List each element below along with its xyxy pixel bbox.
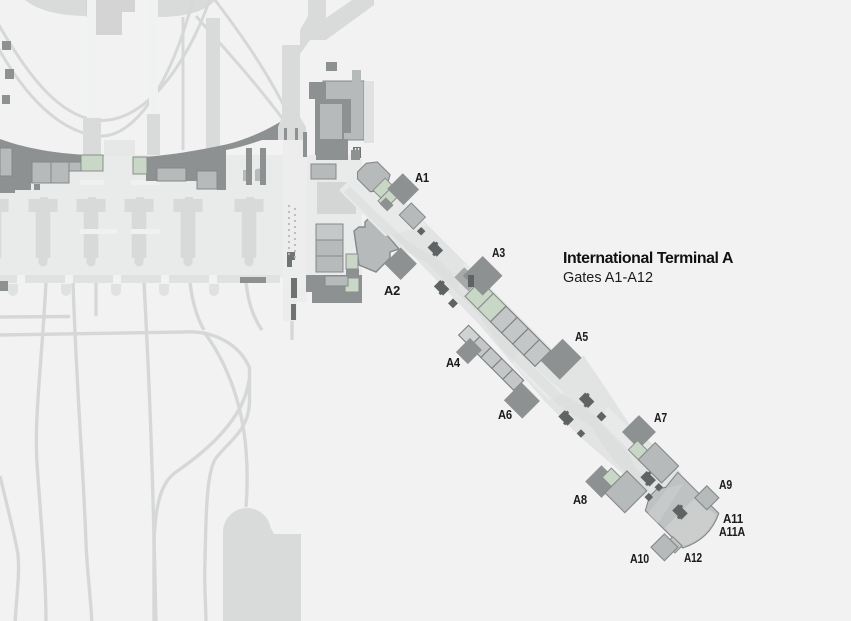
svg-text:A11A: A11A [719, 524, 746, 539]
svg-text:A12: A12 [684, 550, 702, 565]
svg-text:A6: A6 [498, 407, 512, 422]
svg-text:A1: A1 [415, 170, 429, 185]
svg-text:A3: A3 [492, 245, 505, 260]
svg-text:International Terminal A: International Terminal A [563, 250, 733, 267]
svg-text:A8: A8 [573, 492, 587, 507]
svg-text:A5: A5 [575, 329, 588, 344]
svg-text:A9: A9 [719, 477, 732, 492]
svg-text:A7: A7 [654, 410, 667, 425]
svg-text:A2: A2 [384, 283, 400, 298]
svg-text:A4: A4 [446, 355, 461, 370]
svg-text:A10: A10 [630, 551, 649, 566]
svg-text:Gates A1-A12: Gates A1-A12 [563, 269, 653, 286]
